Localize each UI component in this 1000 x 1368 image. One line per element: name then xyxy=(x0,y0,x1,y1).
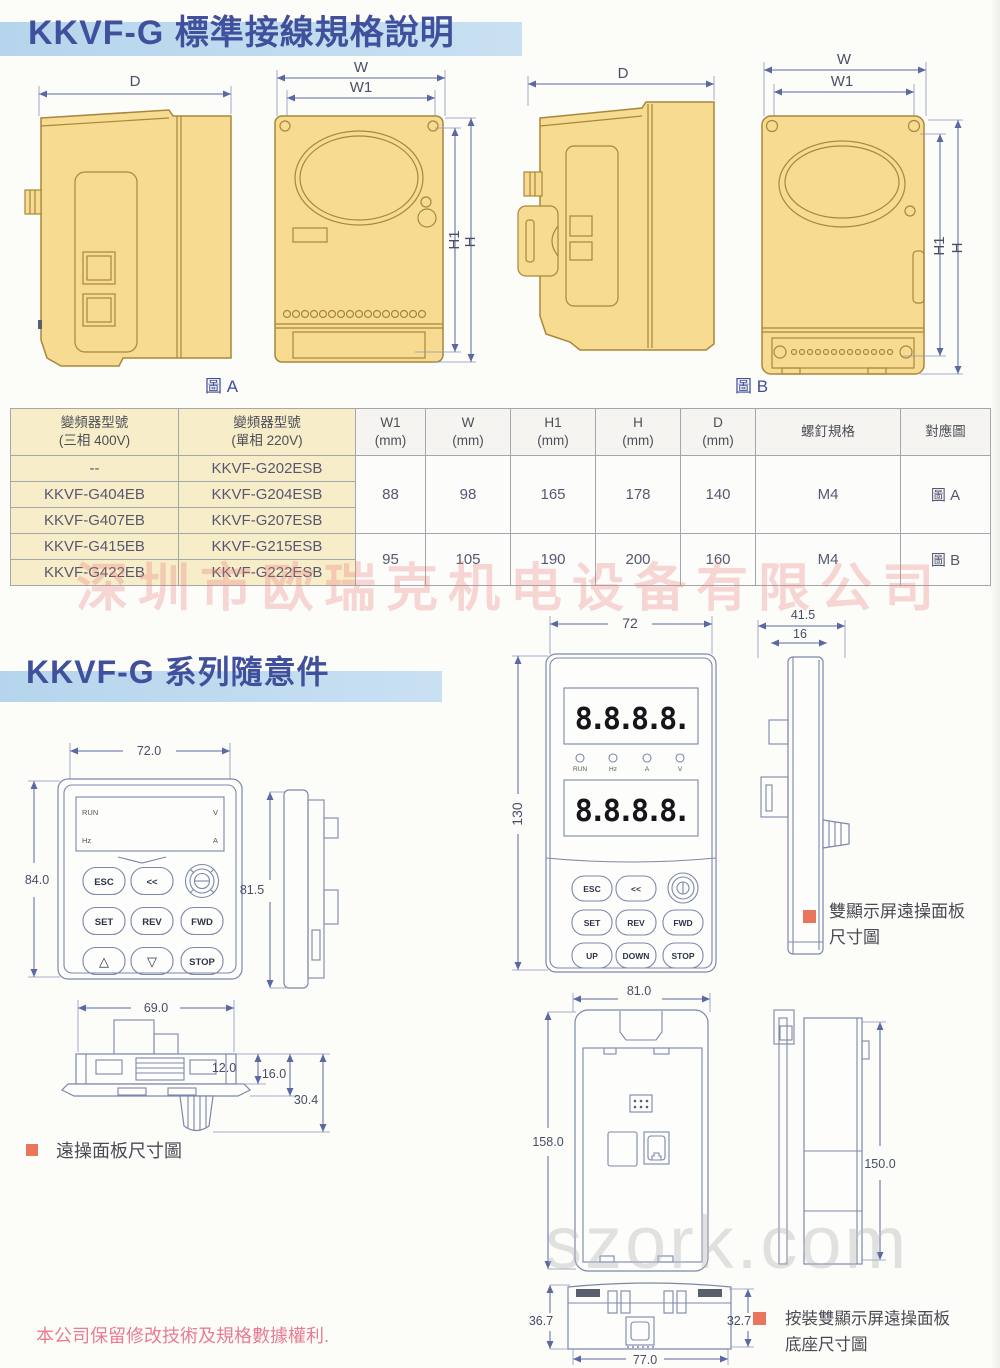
down-button-icon: ▽ xyxy=(147,954,157,969)
seven-segment-display-top: 8.8.8.8. xyxy=(575,702,688,737)
dim-cell-h: 178 xyxy=(596,456,681,534)
back-button-label: << xyxy=(146,877,158,888)
dim-label-h1: H1 xyxy=(446,230,463,249)
dual-panel-caption-line2: 尺寸圖 xyxy=(829,923,880,948)
dimension-d: D xyxy=(39,73,231,116)
set-button-label: SET xyxy=(584,918,601,928)
dim-label-150: 150.0 xyxy=(864,1157,895,1171)
col-header-model-3ph: 變頻器型號(三相 400V) xyxy=(11,409,179,456)
knob-icon xyxy=(186,865,219,898)
remote-panel-front-drawing: 72.0 84.0 RUN Hz V A ESC << xyxy=(18,735,266,1000)
led-hz-label: Hz xyxy=(609,766,617,773)
dim-label-h: H xyxy=(462,237,479,248)
dimension-81: 81.0 xyxy=(573,984,710,1012)
dimension-height: 84.0 xyxy=(25,781,60,977)
dim-cell-d: 140 xyxy=(681,456,756,534)
dim-label-36-7: 36.7 xyxy=(529,1314,553,1328)
caption-bullet-icon xyxy=(803,910,816,923)
dimension-36-7: 36.7 xyxy=(529,1285,570,1349)
rev-button-label: REV xyxy=(142,917,162,928)
display-v-label: V xyxy=(213,808,218,817)
fwd-button-label: FWD xyxy=(673,918,692,928)
base-mount-caption-line2: 底座尺寸圖 xyxy=(785,1331,868,1355)
dimension-d: D xyxy=(528,65,714,106)
display-hz-label: Hz xyxy=(82,836,91,845)
section2-title: KKVF-G 系列隨意件 xyxy=(26,647,330,693)
table-row: -- KKVF-G202ESB 88 98 165 178 140 M4 圖 A xyxy=(11,456,991,482)
keypad: ESC << SET REV FWD UP DOWN STOP xyxy=(572,873,703,968)
company-watermark: 深圳市欧瑞克机电设备有限公司 xyxy=(76,546,944,621)
inverter-side-outline xyxy=(25,110,231,366)
dim-label-w1: W1 xyxy=(831,73,854,90)
figure-a-label: 圖 A xyxy=(205,372,238,397)
dual-panel-caption-line1: 雙顯示屏遠操面板 xyxy=(829,897,965,922)
dimension-16: 16 xyxy=(771,627,827,643)
display-a-label: A xyxy=(213,836,218,845)
dim-label-w1: W1 xyxy=(350,79,373,96)
dim-label-16: 16.0 xyxy=(262,1067,286,1081)
model-cell: KKVF-G407EB xyxy=(11,508,179,534)
figure-b-front-drawing: W W1 xyxy=(752,56,1000,388)
esc-button-label: ESC xyxy=(583,884,600,894)
figure-a-side-drawing: D xyxy=(25,72,245,377)
set-button-label: SET xyxy=(95,917,114,928)
col-header-figure: 對應圖 xyxy=(901,409,991,456)
dim-label-w: W xyxy=(354,59,369,76)
inverter-front-outline xyxy=(762,116,924,374)
stop-button-label: STOP xyxy=(189,957,215,968)
dim-label-72: 72.0 xyxy=(137,744,161,758)
led-a-label: A xyxy=(645,766,650,773)
figure-a-front-drawing: W W1 xyxy=(263,60,478,385)
base-mount-caption-line1: 按裝雙顯示屏遠操面板 xyxy=(785,1305,950,1329)
dim-label-h1: H1 xyxy=(931,236,948,255)
figure-ref-cell: 圖 A xyxy=(901,456,991,534)
col-header-w1: W1(mm) xyxy=(356,409,426,456)
col-header-w: W(mm) xyxy=(426,409,511,456)
rev-button-label: REV xyxy=(627,918,645,928)
caption-bullet-icon xyxy=(753,1312,766,1325)
col-header-d: D(mm) xyxy=(681,409,756,456)
dimension-69: 69.0 xyxy=(78,1000,234,1052)
panel-side-outline xyxy=(284,790,338,988)
inverter-front-outline xyxy=(275,116,443,362)
base-mount-bottom-drawing: 36.7 32.7 77.0 xyxy=(516,1277,784,1368)
model-cell: KKVF-G207ESB xyxy=(179,508,356,534)
dimension-w1: W1 xyxy=(774,73,914,122)
model-cell: -- xyxy=(11,456,179,482)
dim-label-77: 77.0 xyxy=(633,1353,657,1367)
dim-label-d: D xyxy=(618,65,629,82)
dim-label-158: 158.0 xyxy=(532,1135,563,1149)
dim-label-12: 12.0 xyxy=(212,1061,236,1075)
col-header-model-1ph: 變頻器型號(單相 220V) xyxy=(179,409,356,456)
led-run-label: RUN xyxy=(573,766,587,773)
dim-label-84: 84.0 xyxy=(25,873,49,887)
knob-icon xyxy=(668,873,698,903)
dual-panel-front-drawing: 72 130 8.8.8.8. RUN Hz A V xyxy=(500,608,748,984)
caption-bullet-icon xyxy=(26,1144,38,1156)
model-cell: KKVF-G404EB xyxy=(11,482,179,508)
remote-panel-side-drawing: 81.5 xyxy=(232,768,350,1000)
dim-label-130: 130 xyxy=(509,802,525,826)
dim-label-16: 16 xyxy=(793,627,807,641)
dim-cell-w: 98 xyxy=(426,456,511,534)
dim-label-w: W xyxy=(837,51,852,68)
seven-segment-display-bottom: 8.8.8.8. xyxy=(575,794,688,829)
dim-label-32-7: 32.7 xyxy=(727,1314,751,1328)
dim-label-69: 69.0 xyxy=(144,1001,168,1015)
dim-cell-w1: 88 xyxy=(356,456,426,534)
document-page: KKVF-G 標準接線規格說明 D xyxy=(0,0,1000,1368)
figure-b-side-drawing: D xyxy=(518,66,733,376)
dimension-77: 77.0 xyxy=(573,1349,728,1367)
fwd-button-label: FWD xyxy=(191,917,213,928)
model-cell: KKVF-G202ESB xyxy=(179,456,356,482)
dim-label-h: H xyxy=(949,243,966,254)
header-row: 變頻器型號(三相 400V) 變頻器型號(單相 220V) W1(mm) W(m… xyxy=(11,409,991,456)
section1-title: KKVF-G 標準接線規格說明 xyxy=(28,5,455,54)
dim-label-81: 81.0 xyxy=(627,984,651,998)
dim-label-30: 30.4 xyxy=(294,1093,318,1107)
col-header-h1: H1(mm) xyxy=(511,409,596,456)
model-cell: KKVF-G204ESB xyxy=(179,482,356,508)
remote-panel-caption: 遠操面板尺寸圖 xyxy=(56,1137,182,1163)
dim-label-d: D xyxy=(130,73,141,90)
dimension-16: 16.0 xyxy=(250,1054,298,1096)
up-button-label: UP xyxy=(586,951,598,961)
stop-button-label: STOP xyxy=(672,951,695,961)
remote-panel-bottom-drawing: 69.0 12.0 xyxy=(28,992,366,1154)
figure-b-label: 圖 B xyxy=(735,372,768,397)
keypad: ESC << SET REV FWD △ ▽ xyxy=(83,865,223,975)
site-watermark: szork.com xyxy=(545,1200,909,1285)
inverter-side-outline xyxy=(518,102,714,350)
back-button-label: << xyxy=(631,884,641,894)
down-button-label: DOWN xyxy=(623,951,650,961)
display-run-label: RUN xyxy=(82,808,98,817)
base-bottom-outline xyxy=(568,1283,731,1349)
up-button-icon: △ xyxy=(99,954,109,969)
panel-bottom-outline xyxy=(62,1020,250,1131)
col-header-screw: 螺釘規格 xyxy=(756,409,901,456)
rights-note: 本公司保留修改技術及規格數據權利. xyxy=(36,1322,329,1348)
esc-button-label: ESC xyxy=(94,877,114,888)
dimension-width: 72.0 xyxy=(70,743,230,779)
led-v-label: V xyxy=(678,766,683,773)
dimension-130: 130 xyxy=(509,656,548,970)
dim-label-81-5: 81.5 xyxy=(240,883,264,897)
screw-cell: M4 xyxy=(756,456,901,534)
dim-cell-h1: 165 xyxy=(511,456,596,534)
col-header-h: H(mm) xyxy=(596,409,681,456)
